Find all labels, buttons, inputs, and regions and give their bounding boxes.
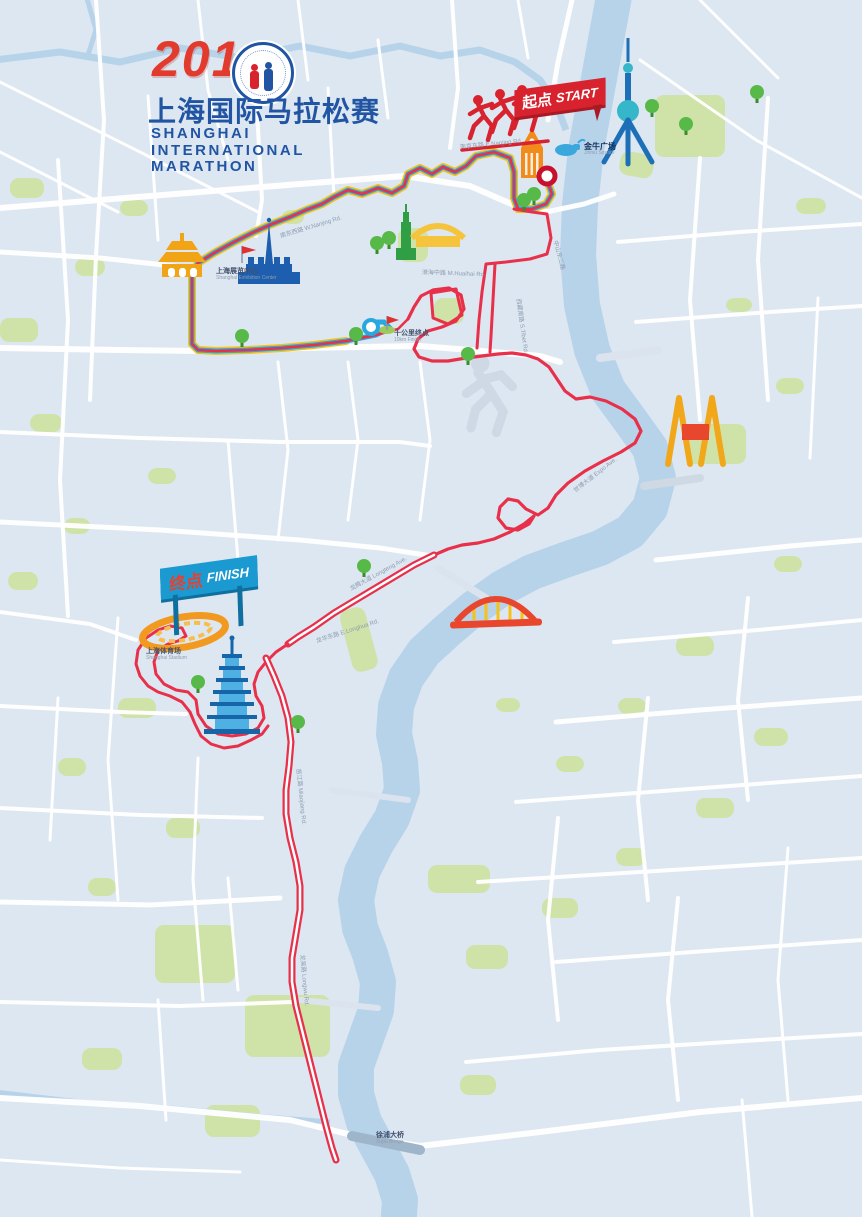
road [0, 1002, 292, 1006]
finish-banner-cn: 终点 [169, 566, 204, 596]
runner-watermark-icon [466, 354, 512, 432]
road [0, 898, 280, 905]
road [0, 706, 186, 714]
road [420, 362, 430, 520]
tree-icon [235, 329, 249, 343]
park [774, 556, 802, 572]
park [466, 945, 508, 969]
route-segment [477, 209, 551, 348]
road [228, 440, 238, 560]
tree-icon [349, 327, 363, 341]
logo-runner-red [250, 71, 259, 89]
landmark-label: 上海展览中心Shanghai Exhibition Center [216, 268, 277, 282]
road [614, 620, 862, 642]
park [88, 878, 116, 896]
start-banner-en: START [556, 85, 598, 106]
landmark-label: 上海体育场Shanghai Stadium [146, 648, 187, 662]
tree-icon [357, 559, 371, 573]
road [108, 618, 118, 900]
park [8, 572, 38, 590]
park [0, 318, 38, 342]
map-canvas [0, 0, 862, 1217]
park [338, 605, 380, 674]
grand-theatre-icon [412, 226, 464, 247]
roads-layer [0, 0, 862, 1216]
title-english: SHANGHAI INTERNATIONAL MARATHON [151, 126, 305, 176]
road [0, 1098, 862, 1146]
park [58, 758, 86, 776]
landmark-label: 金牛广场Jinniu Square [584, 142, 616, 157]
title-english-line1: SHANGHAI [151, 126, 305, 143]
park [120, 200, 148, 216]
park [726, 298, 752, 312]
park [796, 198, 826, 214]
road [690, 158, 700, 420]
road [158, 1000, 166, 1120]
park [776, 378, 804, 394]
park [82, 1048, 122, 1070]
road [738, 598, 748, 800]
start-banner-cn: 起点 [522, 88, 552, 113]
tree-icon [750, 85, 764, 99]
longhua-pagoda-icon [204, 636, 260, 735]
park [148, 468, 176, 484]
road [656, 540, 862, 560]
logo-runner-blue [264, 69, 273, 91]
park [556, 756, 584, 772]
jingan-temple-icon [158, 233, 206, 277]
tree-icon [291, 715, 305, 729]
tree-icon [191, 675, 205, 689]
title-chinese: 上海国际马拉松赛 [148, 90, 380, 130]
park [496, 698, 520, 712]
park [428, 865, 490, 893]
landmark-label: 十公里终点10km Finish [394, 330, 429, 344]
road [518, 0, 528, 58]
tree-icon [382, 231, 396, 245]
road [478, 858, 862, 882]
road [742, 1100, 752, 1216]
park [30, 414, 62, 432]
creek [86, 0, 96, 55]
road [556, 940, 862, 962]
road [466, 1034, 862, 1062]
road [810, 298, 818, 458]
route-median [266, 658, 336, 1160]
tree-icon [370, 236, 384, 250]
road [450, 0, 458, 148]
road [618, 224, 862, 242]
finish-banner-en: FINISH [206, 564, 249, 585]
road [0, 808, 262, 818]
route-segment [490, 264, 495, 352]
road [638, 698, 648, 900]
road [50, 698, 58, 840]
road [668, 898, 678, 1100]
tree-icon [461, 347, 475, 361]
marathon-route-map: 2018 上海国际马拉松赛 SHANGHAI INTERNATIONAL MAR… [0, 0, 862, 1217]
road [556, 698, 862, 722]
park [10, 178, 44, 198]
park [696, 798, 734, 818]
park [460, 1075, 496, 1095]
tree-icon [527, 187, 541, 201]
start-point-marker [539, 168, 555, 184]
park [118, 698, 156, 718]
tree-icon [645, 99, 659, 113]
road [700, 0, 778, 78]
road [548, 818, 558, 1020]
road [278, 362, 288, 540]
road [58, 160, 68, 616]
road [778, 848, 788, 1100]
road [298, 0, 308, 80]
landmark-label: 徐浦大桥Xupu Bridge [376, 1132, 404, 1146]
park [155, 925, 235, 983]
road [0, 1160, 240, 1172]
park [676, 636, 714, 656]
park [754, 728, 788, 746]
park [75, 258, 105, 276]
park [618, 698, 646, 714]
tree-icon [679, 117, 693, 131]
road [516, 776, 862, 802]
road [0, 432, 430, 446]
title-english-line2: INTERNATIONAL [151, 143, 305, 160]
title-english-line3: MARATHON [151, 159, 305, 176]
